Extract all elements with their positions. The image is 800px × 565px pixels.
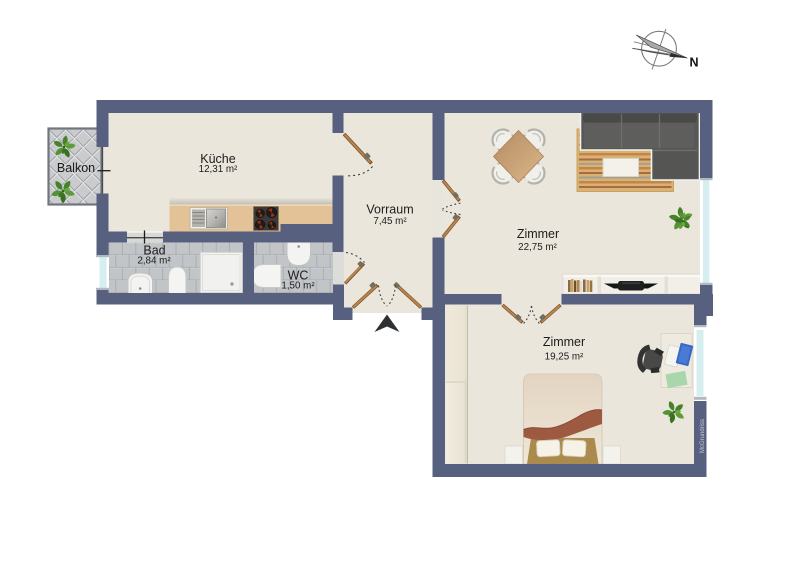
svg-text:Balkon: Balkon bbox=[57, 161, 95, 175]
svg-text:7,45 m²: 7,45 m² bbox=[373, 216, 407, 227]
svg-text:12,31 m²: 12,31 m² bbox=[199, 164, 238, 175]
svg-text:N: N bbox=[690, 56, 699, 70]
svg-text:Vorraum: Vorraum bbox=[366, 203, 413, 217]
svg-text:Zimmer: Zimmer bbox=[517, 227, 559, 241]
svg-text:2,84 m²: 2,84 m² bbox=[137, 256, 171, 267]
svg-text:22,75 m²: 22,75 m² bbox=[518, 242, 557, 253]
svg-text:19,25 m²: 19,25 m² bbox=[545, 352, 584, 363]
svg-text:Zimmer: Zimmer bbox=[543, 335, 585, 349]
svg-text:McGrundriss: McGrundriss bbox=[700, 419, 706, 453]
svg-text:1,50 m²: 1,50 m² bbox=[281, 281, 315, 292]
